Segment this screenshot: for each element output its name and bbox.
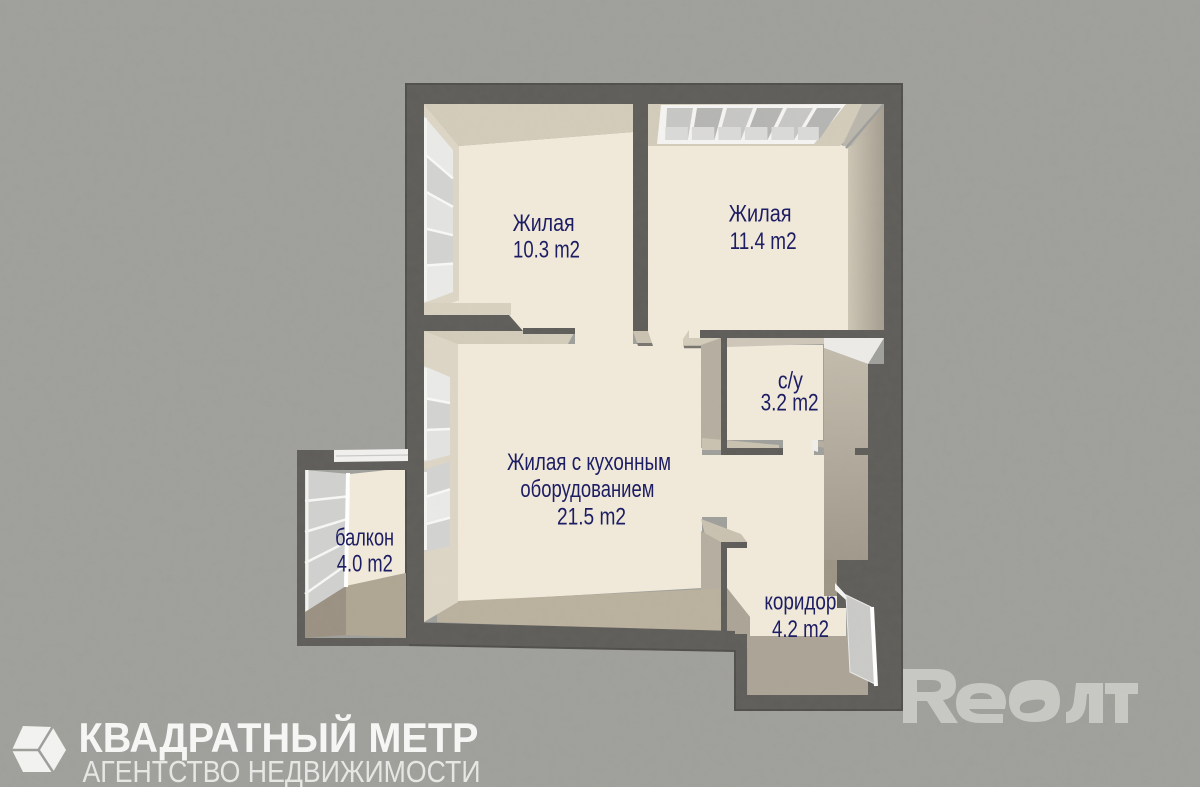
svg-text:коридор: коридор xyxy=(764,589,836,616)
svg-text:10.3 m2: 10.3 m2 xyxy=(513,237,580,264)
svg-text:Жилая: Жилая xyxy=(513,210,575,237)
svg-text:Жилая с кухонным: Жилая с кухонным xyxy=(507,449,671,476)
svg-text:21.5 m2: 21.5 m2 xyxy=(557,504,626,531)
svg-text:балкон: балкон xyxy=(335,525,394,552)
svg-text:Жилая: Жилая xyxy=(729,201,792,228)
svg-text:3.2 m2: 3.2 m2 xyxy=(761,390,819,417)
svg-text:4.2 m2: 4.2 m2 xyxy=(772,616,829,643)
svg-text:оборудованием: оборудованием xyxy=(520,476,654,503)
svg-text:4.0 m2: 4.0 m2 xyxy=(337,551,393,578)
svg-text:11.4 m2: 11.4 m2 xyxy=(730,228,797,255)
